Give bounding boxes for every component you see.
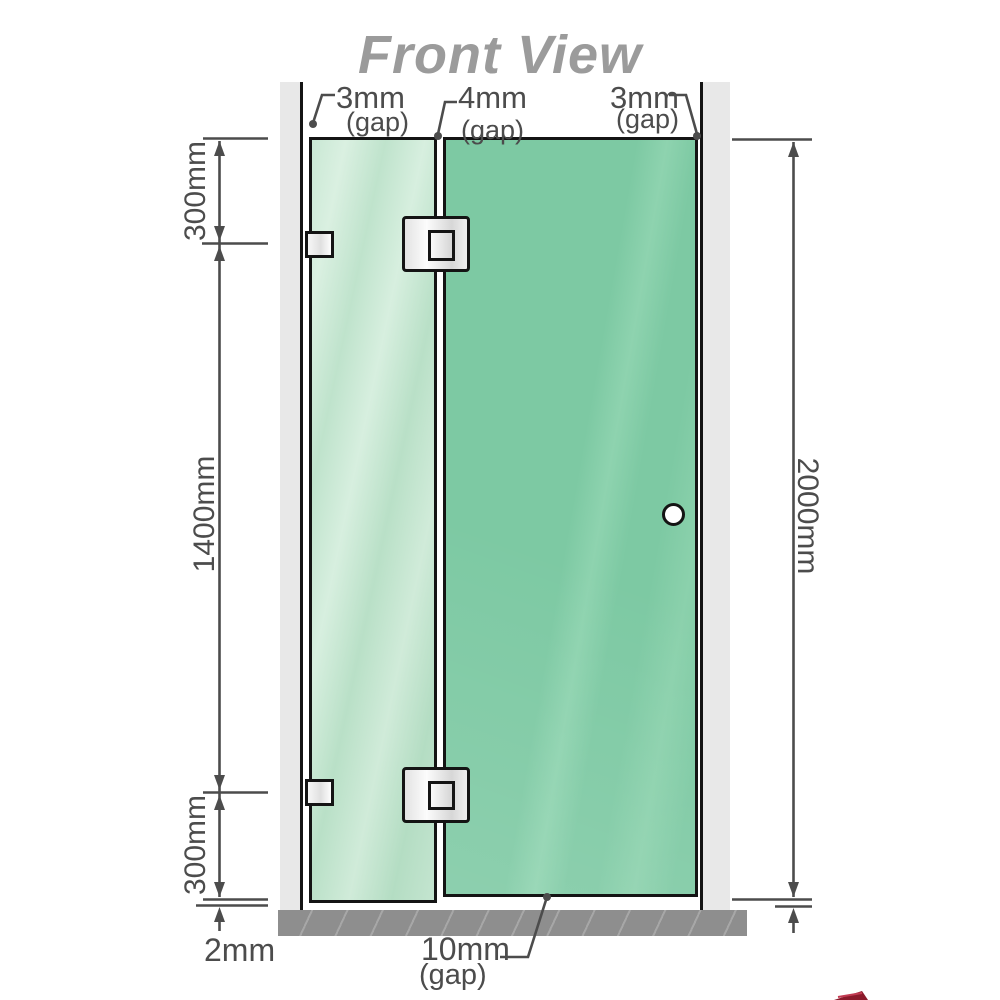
door-handle-knob [662, 503, 685, 526]
floor-base [278, 910, 747, 936]
wall-bracket-bottom [305, 779, 334, 806]
hinge-top-knuckle [428, 230, 455, 261]
gap-label-mid-value: 4mm [458, 82, 527, 113]
left-wall [280, 82, 303, 910]
dim-label-1400: 1400mm [190, 456, 220, 573]
wall-bracket-top [305, 231, 334, 258]
page-title: Front View [0, 24, 1000, 86]
shower-screen-front-view-diagram: Front View [0, 0, 1000, 1000]
gap-label-bottom-note: (gap) [419, 961, 487, 990]
logo-fragment [834, 991, 868, 1000]
door-glass-panel [443, 137, 698, 897]
right-wall [700, 82, 730, 910]
dim-label-2mm: 2mm [204, 934, 275, 966]
hinge-bottom-knuckle [428, 781, 455, 810]
dim-label-2000: 2000mm [792, 458, 822, 575]
gap-label-left-note: (gap) [346, 109, 409, 136]
dim-label-300-bottom: 300mm [181, 795, 211, 895]
gap-label-right-note: (gap) [616, 106, 679, 133]
gap-label-mid-note: (gap) [461, 117, 524, 144]
dim-label-300-top: 300mm [181, 141, 211, 241]
